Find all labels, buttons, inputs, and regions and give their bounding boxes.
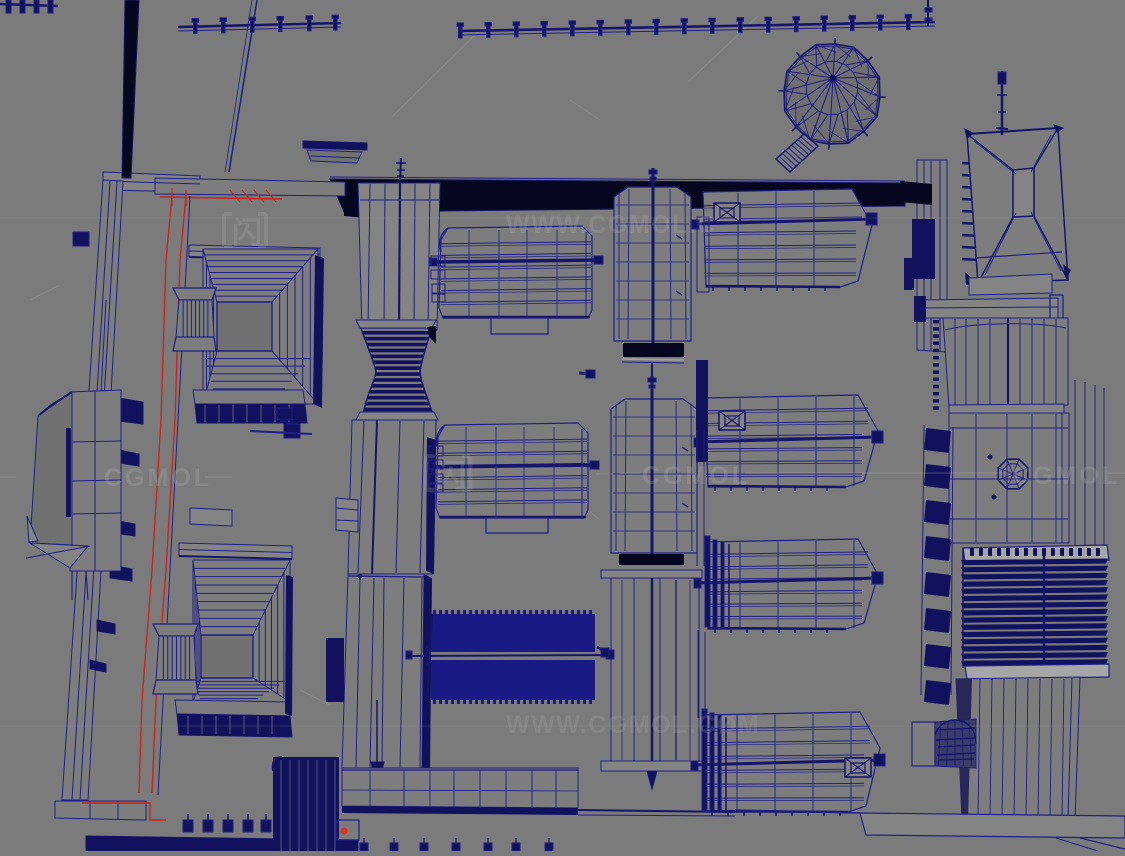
svg-text:WWW.CGMOL.CØM: WWW.CGMOL.CØM: [506, 711, 760, 739]
svg-text:闪: 闪: [435, 458, 466, 494]
svg-text:CGMOL: CGMOL: [642, 462, 750, 490]
svg-text:WWW.CGMOL.C: WWW.CGMOL.C: [506, 211, 717, 239]
svg-text:CGMOL: CGMOL: [104, 464, 212, 492]
svg-text:闪: 闪: [232, 217, 262, 250]
svg-text:CGMOL: CGMOL: [1012, 462, 1120, 490]
